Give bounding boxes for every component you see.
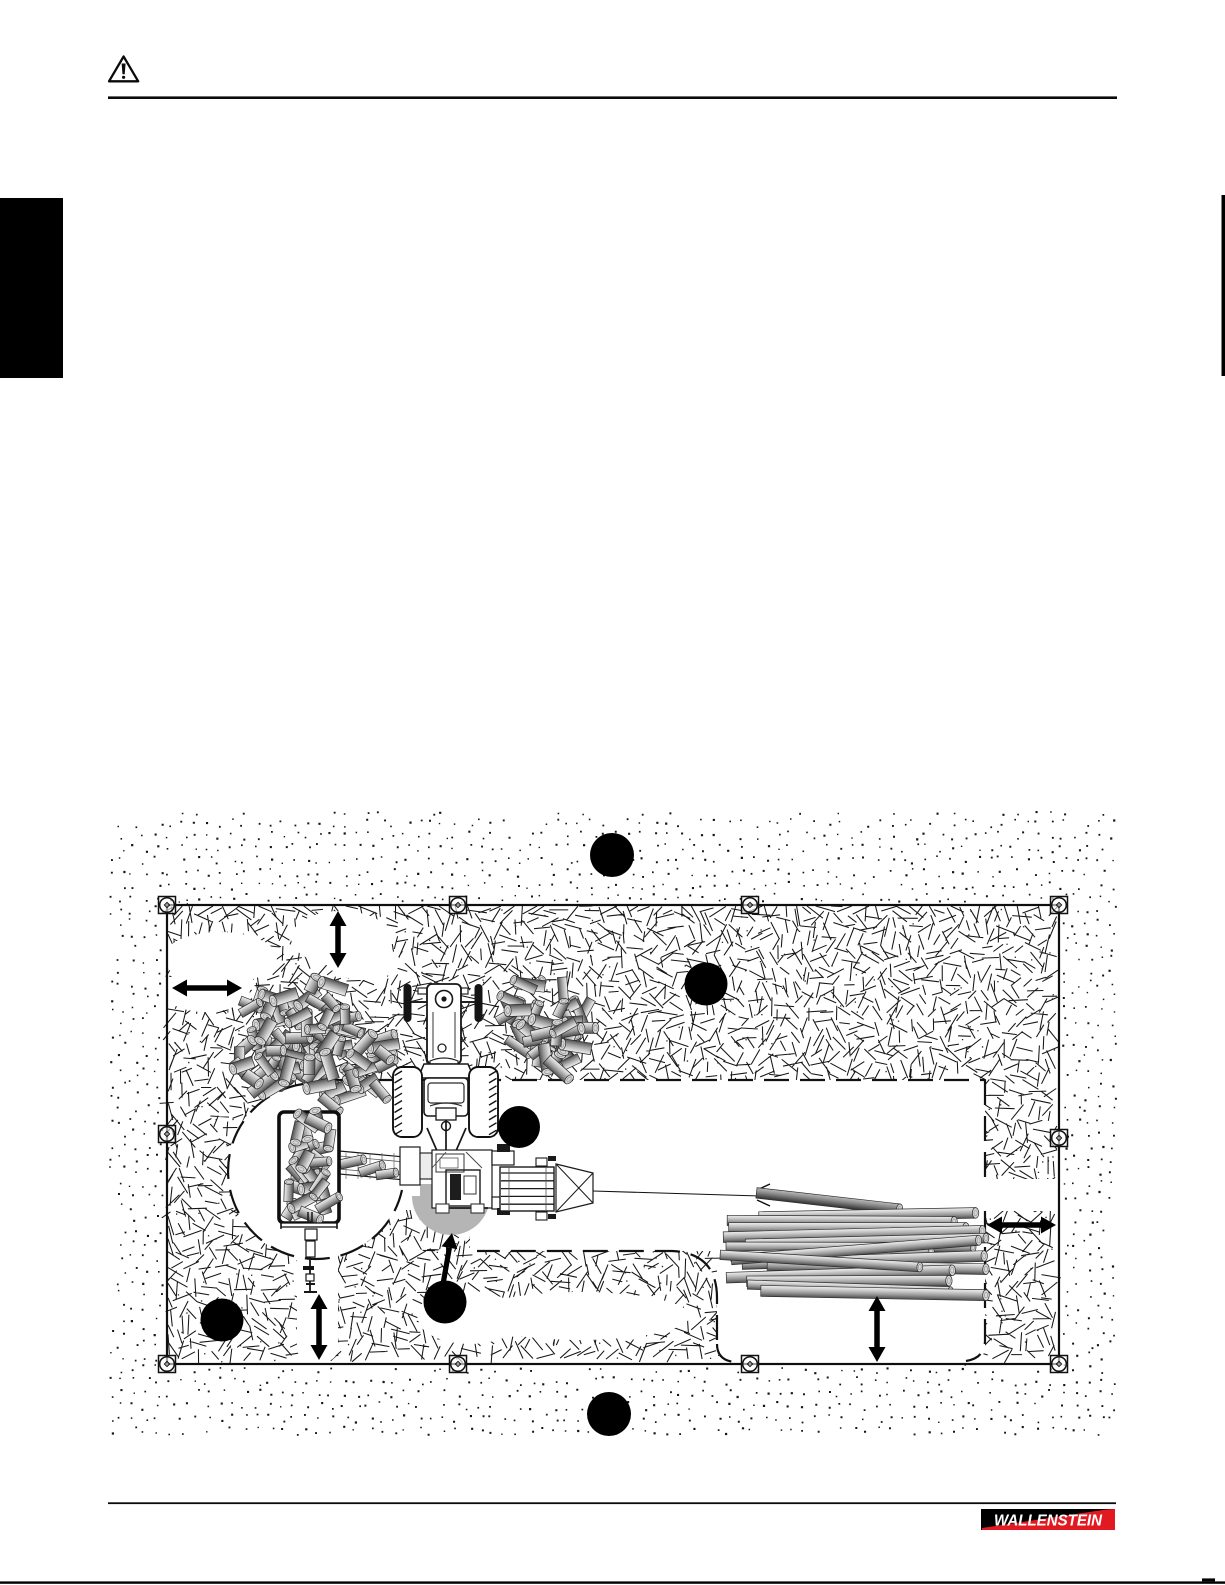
svg-text:WALLENSTEIN: WALLENSTEIN [994, 1513, 1103, 1530]
